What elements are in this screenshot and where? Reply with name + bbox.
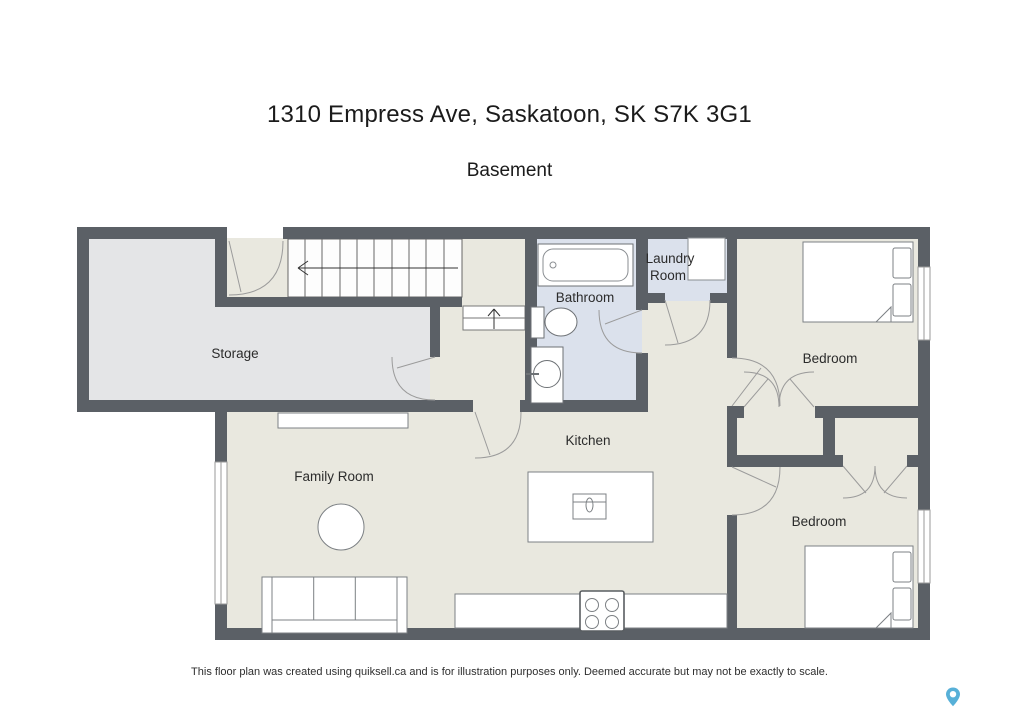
floor-plan-page: 1310 Empress Ave, Saskatoon, SK S7K 3G1 … [0,0,1019,720]
room-label-laundry-1: Laundry [646,251,695,266]
kitchen-island [528,472,653,542]
disclaimer-text: This floor plan was created using quikse… [0,666,1019,678]
room-label-bedroom-top: Bedroom [803,351,858,366]
room-label-bedroom-bottom: Bedroom [792,514,847,529]
family-room-window [215,462,227,604]
bathroom-sink [526,347,563,403]
bathtub [538,244,633,286]
bed-top [803,242,913,322]
room-label-storage: Storage [211,346,258,361]
floor-plan: Storage Bathroom Laundry Room Bedroom Ki… [0,0,1019,720]
room-label-laundry-2: Room [650,268,686,283]
sofa [262,577,407,633]
map-pin-icon [944,686,962,708]
bedroom-bottom-window [918,510,930,583]
stair-landing [463,306,525,330]
bed-bottom [805,546,913,628]
bedroom-top-window [918,267,930,340]
room-label-family-room: Family Room [294,469,374,484]
room-label-kitchen: Kitchen [565,433,610,448]
stove [580,591,624,631]
floors [89,238,918,628]
round-table [318,504,364,550]
media-shelf [278,413,408,428]
toilet [531,307,577,338]
staircase [288,239,462,297]
room-label-bathroom: Bathroom [556,290,615,305]
